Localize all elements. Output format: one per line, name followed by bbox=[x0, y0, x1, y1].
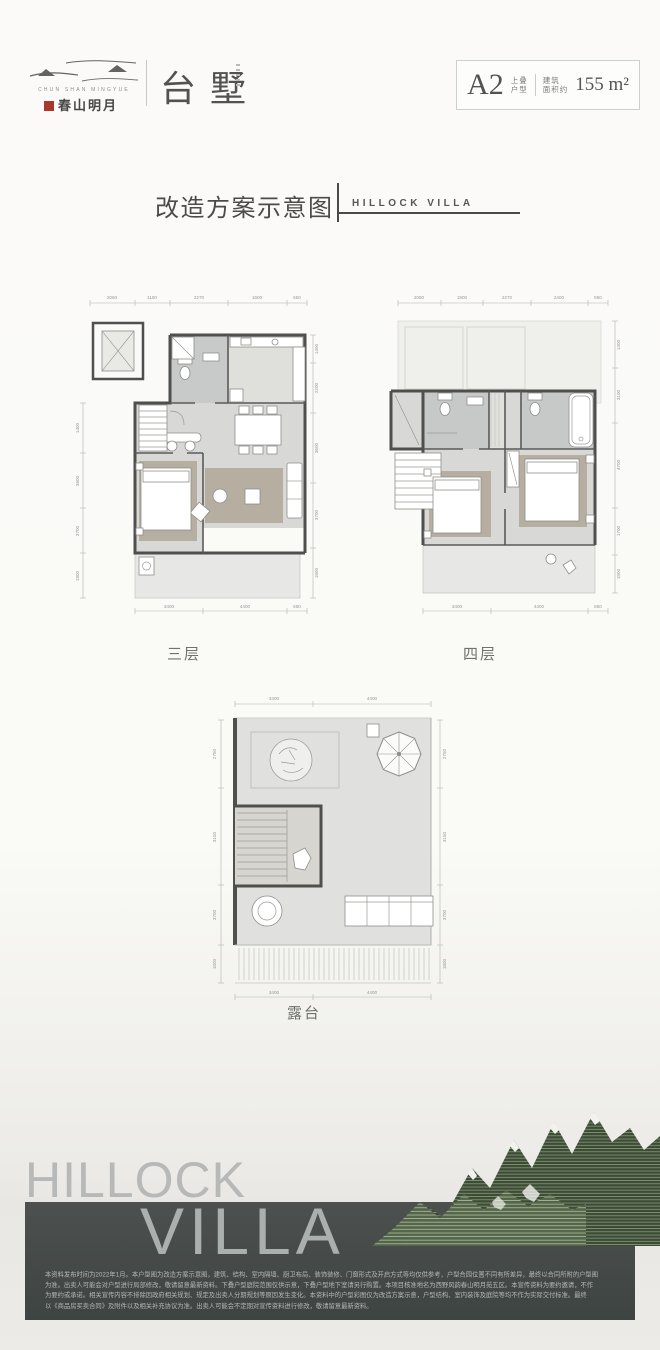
disclaimer-line: 为准。出卖人可能会对户型进行局部修改，敬请留意最新资料。下叠户型庭院范围仅供示意… bbox=[45, 1280, 615, 1290]
dim-text: 3600 bbox=[75, 475, 80, 486]
badge-divider bbox=[535, 74, 536, 96]
dim-bottom-3f: 3400 4400 650 bbox=[135, 604, 307, 614]
toilet bbox=[440, 403, 450, 416]
nightstand bbox=[136, 528, 143, 535]
dim-text: 4400 bbox=[240, 604, 251, 609]
dim-top-terrace: 3400 4400 bbox=[235, 696, 431, 707]
toilet bbox=[530, 403, 540, 416]
chair bbox=[267, 406, 277, 414]
dim-top-4f: 2060 1900 2270 2400 650 bbox=[398, 295, 608, 306]
area-label: 建筑面积约 bbox=[543, 76, 569, 94]
title-rule-horizontal bbox=[338, 212, 520, 214]
washer bbox=[139, 557, 154, 575]
dim-text: 1800 bbox=[442, 958, 447, 969]
dim-text: 1800 bbox=[616, 568, 621, 579]
kitchen-counter-side bbox=[293, 347, 305, 401]
closet bbox=[489, 391, 505, 449]
chair bbox=[253, 446, 263, 454]
product-fineprint-marks bbox=[236, 64, 240, 88]
nightstand bbox=[586, 455, 594, 463]
dim-text: 3100 bbox=[616, 389, 621, 400]
dim-text: 2200 bbox=[314, 382, 319, 393]
toilet bbox=[180, 367, 190, 380]
logo-english-name: CHUN SHAN MINGYUE bbox=[28, 87, 140, 93]
corridor bbox=[505, 391, 521, 449]
unit-type-line2: 户型 bbox=[511, 85, 528, 94]
bar-counter bbox=[163, 433, 201, 442]
dim-text: 1600 bbox=[252, 295, 263, 300]
logo-chinese-row: 春山明月 bbox=[44, 95, 118, 115]
dim-text: 4400 bbox=[534, 604, 545, 609]
disclaimer-line: 为要约或承诺。相关宣传内容不排除因政府相关规划、规定及出卖人分期规划等原因发生变… bbox=[45, 1291, 615, 1301]
dining-table bbox=[235, 415, 281, 445]
floor-plan-terrace: 3400 4400 3400 4400 27 bbox=[203, 692, 458, 1007]
floor-plan-3f: 2060 1150 2270 1600 650 bbox=[75, 293, 325, 633]
dim-text: 650 bbox=[594, 604, 602, 609]
dim-text: 3400 bbox=[452, 604, 463, 609]
nightstand bbox=[424, 531, 431, 538]
page-title: 改造方案示意图 bbox=[155, 188, 334, 223]
round-table bbox=[252, 896, 282, 926]
page: { "logo": { "en": "CHUN SHAN MINGYUE", "… bbox=[0, 0, 660, 1350]
stool bbox=[185, 441, 195, 451]
unit-code: A2 bbox=[467, 70, 504, 100]
plan-label-4f: 四层 bbox=[450, 643, 510, 664]
unit-type-label: 上叠户型 bbox=[511, 76, 528, 94]
stairs bbox=[139, 405, 167, 451]
toilet-tank bbox=[528, 393, 542, 400]
dim-text: 2060 bbox=[414, 295, 425, 300]
floor-plan-4f: 2060 1900 2270 2400 650 bbox=[383, 293, 628, 633]
dim-text: 3400 bbox=[164, 604, 175, 609]
dim-bottom-terrace: 3400 4400 bbox=[235, 990, 431, 1000]
red-seal-icon bbox=[44, 101, 54, 111]
coffee-table bbox=[245, 489, 260, 504]
unit-badge: A2 上叠户型 建筑面积约 155 m² bbox=[456, 60, 640, 110]
disclaimer-line: 以《商品房买卖合同》及附件以及相关补充协议为准。出卖人可能会不定期对宣传资料进行… bbox=[45, 1301, 615, 1311]
dim-text: 1800 bbox=[314, 567, 319, 578]
dim-text: 1400 bbox=[75, 422, 80, 433]
bathtub bbox=[569, 393, 593, 447]
bed-pillows bbox=[143, 471, 189, 482]
stool bbox=[167, 441, 177, 451]
toilet-tank bbox=[438, 393, 452, 400]
chair bbox=[239, 406, 249, 414]
nightstand bbox=[586, 515, 594, 523]
page-title-en: HILLOCK VILLA bbox=[352, 198, 474, 209]
logo-chinese-name: 春山明月 bbox=[58, 98, 118, 113]
dim-right-4f: 1400 3100 4700 1700 1800 bbox=[612, 321, 621, 593]
dim-text: 1800 bbox=[212, 958, 217, 969]
elevator bbox=[93, 323, 143, 379]
bed-pillows bbox=[527, 462, 577, 473]
dim-text: 1400 bbox=[616, 339, 621, 350]
dim-text: 650 bbox=[293, 295, 301, 300]
chair bbox=[239, 446, 249, 454]
dim-text: 3600 bbox=[314, 442, 319, 453]
dim-text: 3150 bbox=[212, 831, 217, 842]
dim-text: 3700 bbox=[314, 509, 319, 520]
dim-right-3f: 1400 2200 3600 3700 1800 bbox=[310, 335, 319, 598]
balcony bbox=[135, 553, 300, 598]
dim-text: 1150 bbox=[147, 295, 157, 300]
dim-text: 3700 bbox=[442, 909, 447, 920]
dim-text: 2060 bbox=[107, 295, 118, 300]
dim-text: 2750 bbox=[442, 748, 447, 759]
armchair bbox=[213, 489, 227, 503]
chair bbox=[253, 406, 263, 414]
sink bbox=[203, 353, 219, 361]
logo-divider bbox=[146, 60, 147, 106]
sofa bbox=[287, 463, 302, 518]
pergola-strip bbox=[235, 945, 431, 983]
plan-label-terrace: 露台 bbox=[274, 1002, 334, 1023]
dim-bottom-4f: 3400 4400 650 bbox=[423, 604, 608, 614]
dim-text: 650 bbox=[293, 604, 301, 609]
dim-text: 1400 bbox=[314, 343, 319, 354]
tree bbox=[270, 739, 312, 781]
fridge bbox=[230, 389, 243, 402]
dim-text: 4700 bbox=[616, 459, 621, 470]
dim-text: 2750 bbox=[212, 748, 217, 759]
sink bbox=[467, 397, 483, 405]
product-name: 台墅 bbox=[160, 60, 260, 112]
dim-text: 650 bbox=[594, 295, 602, 300]
nightstand bbox=[136, 463, 143, 470]
dim-text: 3150 bbox=[442, 831, 447, 842]
cooktop bbox=[241, 338, 251, 345]
dim-text: 3700 bbox=[212, 909, 217, 920]
dim-text: 4400 bbox=[367, 696, 378, 701]
side-table bbox=[367, 724, 379, 737]
terrace-plant bbox=[546, 554, 556, 564]
dim-left-terrace: 2750 3150 3700 1800 bbox=[212, 720, 224, 983]
area-label-line2: 面积约 bbox=[543, 85, 569, 94]
stair-enclosure bbox=[235, 806, 321, 886]
outdoor-sofa bbox=[345, 896, 433, 926]
logo-mountain-icon bbox=[28, 55, 140, 85]
footer-wordmark-villa: VILLA bbox=[140, 1198, 345, 1264]
kitchen-sink bbox=[272, 339, 278, 345]
dim-text: 1700 bbox=[616, 525, 621, 536]
dim-text: 2270 bbox=[502, 295, 513, 300]
chair bbox=[267, 446, 277, 454]
disclaimer-line: 本资料发布时间为2022年1月。本户型图为改造方案示意图，建筑、结构、室内隔墙、… bbox=[45, 1270, 615, 1280]
dim-text: 2270 bbox=[194, 295, 205, 300]
dim-text: 3400 bbox=[269, 990, 280, 995]
area-label-line1: 建筑 bbox=[543, 76, 560, 85]
area-value: 155 m² bbox=[575, 74, 629, 96]
dim-text: 3400 bbox=[269, 696, 280, 701]
dim-right-terrace: 2750 3150 3700 1800 bbox=[437, 720, 447, 983]
bed-pillows bbox=[435, 480, 479, 490]
dim-text: 1900 bbox=[457, 295, 468, 300]
dim-text: 1800 bbox=[75, 570, 80, 581]
dim-left-3f: 1400 3600 3700 1800 bbox=[75, 403, 86, 598]
mountain-artwork bbox=[372, 1106, 660, 1246]
dim-text: 3700 bbox=[75, 525, 80, 536]
dim-top-3f: 2060 1150 2270 1600 650 bbox=[90, 295, 307, 306]
footer-disclaimer: 本资料发布时间为2022年1月。本户型图为改造方案示意图，建筑、结构、室内隔墙、… bbox=[45, 1270, 615, 1312]
dim-text: 2400 bbox=[554, 295, 565, 300]
title-rule-vertical bbox=[337, 183, 339, 222]
nightstand bbox=[424, 469, 431, 476]
rooms-3f bbox=[135, 335, 305, 598]
dim-text: 4400 bbox=[367, 990, 378, 995]
unit-type-line1: 上叠 bbox=[511, 76, 528, 85]
plan-label-3f: 三层 bbox=[154, 643, 214, 664]
